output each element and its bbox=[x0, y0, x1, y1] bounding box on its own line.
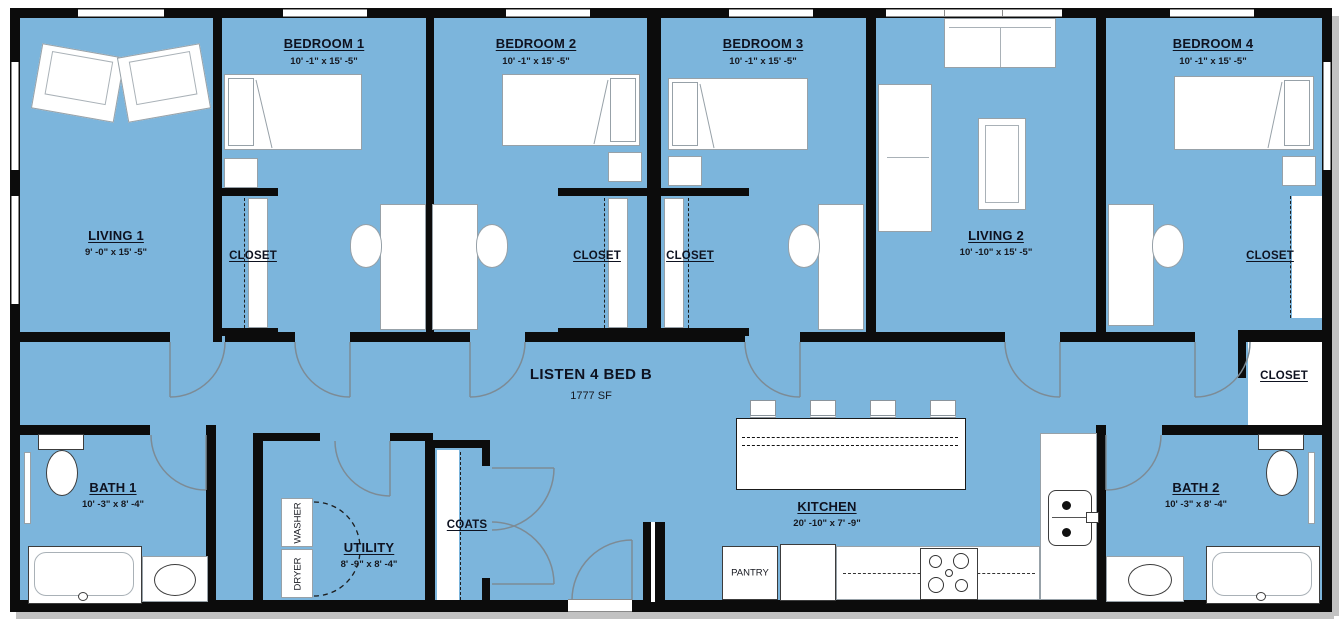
dryer-label: DRYER bbox=[293, 557, 304, 590]
pillow bbox=[228, 78, 254, 146]
desk-chair bbox=[350, 224, 382, 268]
room-dims-bath-1: 10' -3" x 8' -4" bbox=[82, 499, 144, 510]
dryer: DRYER bbox=[281, 549, 313, 598]
closet-label: CLOSET bbox=[229, 250, 277, 262]
closet-label: CLOSET bbox=[573, 250, 621, 262]
room-dims-bedroom-3: 10' -1" x 15' -5" bbox=[729, 56, 796, 67]
stove-burner bbox=[928, 577, 944, 593]
closet-wall bbox=[558, 328, 647, 336]
wall bbox=[253, 433, 263, 612]
wall bbox=[350, 332, 470, 342]
armchair bbox=[31, 43, 125, 123]
tub-faucet bbox=[78, 592, 88, 601]
fridge bbox=[780, 544, 836, 601]
bar-stool bbox=[870, 400, 896, 418]
desk-chair bbox=[476, 224, 508, 268]
room-label-kitchen: KITCHEN bbox=[797, 499, 856, 514]
sofa bbox=[944, 18, 1056, 68]
island-counter-overhang bbox=[742, 437, 958, 446]
window bbox=[11, 196, 19, 304]
desk bbox=[818, 204, 864, 330]
nightstand bbox=[224, 158, 258, 188]
pillow bbox=[672, 82, 698, 146]
room-label-bedroom-4: BEDROOM 4 bbox=[1173, 36, 1254, 51]
room-dims-bedroom-4: 10' -1" x 15' -5" bbox=[1179, 56, 1246, 67]
nightstand bbox=[1282, 156, 1316, 186]
armchair-cushion bbox=[45, 51, 114, 105]
wall bbox=[425, 440, 490, 448]
closet-door bbox=[608, 198, 628, 328]
plan-area: 1777 SF bbox=[570, 390, 612, 402]
plan-title: LISTEN 4 BED B bbox=[530, 366, 652, 383]
sink bbox=[154, 564, 196, 596]
wall bbox=[253, 433, 320, 441]
sofa bbox=[878, 84, 932, 232]
window-mullion bbox=[1002, 9, 1003, 17]
room-label-coats: COATS bbox=[447, 519, 487, 531]
kitchen-island bbox=[736, 418, 966, 490]
wall bbox=[425, 440, 435, 612]
closet-wall bbox=[661, 328, 749, 336]
wall bbox=[800, 332, 1005, 342]
desk bbox=[380, 204, 426, 330]
grab-bar bbox=[24, 452, 31, 524]
desk-chair bbox=[788, 224, 820, 268]
shadow-right bbox=[1332, 16, 1339, 616]
closet-floor bbox=[1292, 196, 1322, 318]
stove-burner bbox=[955, 579, 968, 592]
stove-burner bbox=[953, 553, 969, 569]
sink-drain bbox=[1062, 528, 1071, 537]
stove bbox=[920, 548, 978, 600]
sink bbox=[1128, 564, 1172, 596]
closet-door-track bbox=[688, 198, 689, 328]
floor-plan: WASHER DRYER PANTRY bbox=[0, 0, 1342, 624]
room-label-bath-2: BATH 2 bbox=[1172, 480, 1219, 495]
room-label-bedroom-1: BEDROOM 1 bbox=[284, 36, 365, 51]
window bbox=[283, 9, 367, 17]
stove-burner bbox=[929, 555, 942, 568]
closet-door bbox=[248, 198, 268, 328]
wall bbox=[482, 578, 490, 602]
shadow-bottom bbox=[16, 612, 1334, 619]
room-label-living-2: LIVING 2 bbox=[968, 228, 1024, 243]
closet-door-track bbox=[604, 198, 605, 328]
armchair-cushion bbox=[129, 51, 198, 105]
room-label-utility: UTILITY bbox=[344, 540, 395, 555]
room-label-bedroom-3: BEDROOM 3 bbox=[723, 36, 804, 51]
wall bbox=[1060, 332, 1195, 342]
wall bbox=[482, 440, 490, 466]
window bbox=[506, 9, 590, 17]
pillow bbox=[1284, 80, 1310, 146]
closet-floor bbox=[1248, 342, 1322, 425]
desk-chair bbox=[1152, 224, 1184, 268]
bathtub-basin bbox=[34, 552, 134, 596]
room-dims-living-1: 9' -0" x 15' -5" bbox=[85, 247, 147, 258]
wall bbox=[213, 18, 222, 342]
window bbox=[1323, 62, 1331, 170]
room-dims-utility: 8' -9" x 8' -4" bbox=[341, 559, 398, 570]
washer: WASHER bbox=[281, 498, 313, 547]
pantry-label: PANTRY bbox=[731, 568, 769, 579]
nightstand bbox=[668, 156, 702, 186]
room-label-living-1: LIVING 1 bbox=[88, 228, 144, 243]
wall bbox=[10, 332, 170, 342]
closet-label: CLOSET bbox=[666, 250, 714, 262]
window bbox=[1170, 9, 1254, 17]
closet-label: CLOSET bbox=[1246, 250, 1294, 262]
coffee-table-top bbox=[985, 125, 1019, 203]
room-dims-kitchen: 20' -10" x 7' -9" bbox=[793, 518, 860, 529]
desk bbox=[432, 204, 478, 330]
pillow bbox=[610, 78, 636, 142]
sofa-seat-divider bbox=[1000, 27, 1001, 67]
bathtub-basin bbox=[1212, 552, 1312, 596]
entry-door-sill bbox=[568, 599, 632, 612]
window bbox=[78, 9, 164, 17]
wall bbox=[647, 18, 661, 342]
sofa-seat-divider bbox=[887, 157, 929, 158]
window bbox=[729, 9, 813, 17]
room-label-bedroom-2: BEDROOM 2 bbox=[496, 36, 577, 51]
closet-wall bbox=[1238, 342, 1246, 378]
stove-knob bbox=[945, 569, 953, 577]
desk bbox=[1108, 204, 1154, 326]
room-label-bath-1: BATH 1 bbox=[89, 480, 136, 495]
closet-label: CLOSET bbox=[1260, 370, 1308, 382]
bar-stool bbox=[930, 400, 956, 418]
grab-bar bbox=[1308, 452, 1315, 524]
room-dims-bedroom-2: 10' -1" x 15' -5" bbox=[502, 56, 569, 67]
room-dims-living-2: 10' -10" x 15' -5" bbox=[960, 247, 1033, 258]
closet-door bbox=[664, 198, 684, 328]
bar-stool bbox=[810, 400, 836, 418]
wall bbox=[1238, 330, 1322, 342]
room-dims-bath-2: 10' -3" x 8' -4" bbox=[1165, 499, 1227, 510]
toilet-tank bbox=[38, 434, 84, 450]
wall bbox=[866, 18, 876, 342]
sink-faucet bbox=[1086, 512, 1099, 523]
room-dims-bedroom-1: 10' -1" x 15' -5" bbox=[290, 56, 357, 67]
wall bbox=[10, 8, 1332, 18]
closet-wall bbox=[558, 188, 647, 196]
toilet-bowl bbox=[1266, 450, 1298, 496]
pantry-cabinet: PANTRY bbox=[722, 546, 778, 600]
sink-drain bbox=[1062, 501, 1071, 510]
wall bbox=[1096, 18, 1106, 342]
window bbox=[886, 9, 1062, 17]
closet-wall bbox=[222, 188, 278, 196]
window-mullion bbox=[944, 9, 945, 17]
washer-label: WASHER bbox=[293, 502, 304, 543]
wall-gap-line bbox=[651, 522, 655, 602]
nightstand bbox=[608, 152, 642, 182]
window bbox=[11, 62, 19, 170]
coffee-table bbox=[978, 118, 1026, 210]
sink-divider bbox=[1052, 517, 1087, 518]
bar-stool bbox=[750, 400, 776, 418]
closet-wall bbox=[661, 188, 749, 196]
closet-door-track bbox=[244, 198, 245, 328]
toilet-tank bbox=[1258, 434, 1304, 450]
toilet-bowl bbox=[46, 450, 78, 496]
tub-faucet bbox=[1256, 592, 1266, 601]
closet-wall bbox=[222, 328, 278, 336]
